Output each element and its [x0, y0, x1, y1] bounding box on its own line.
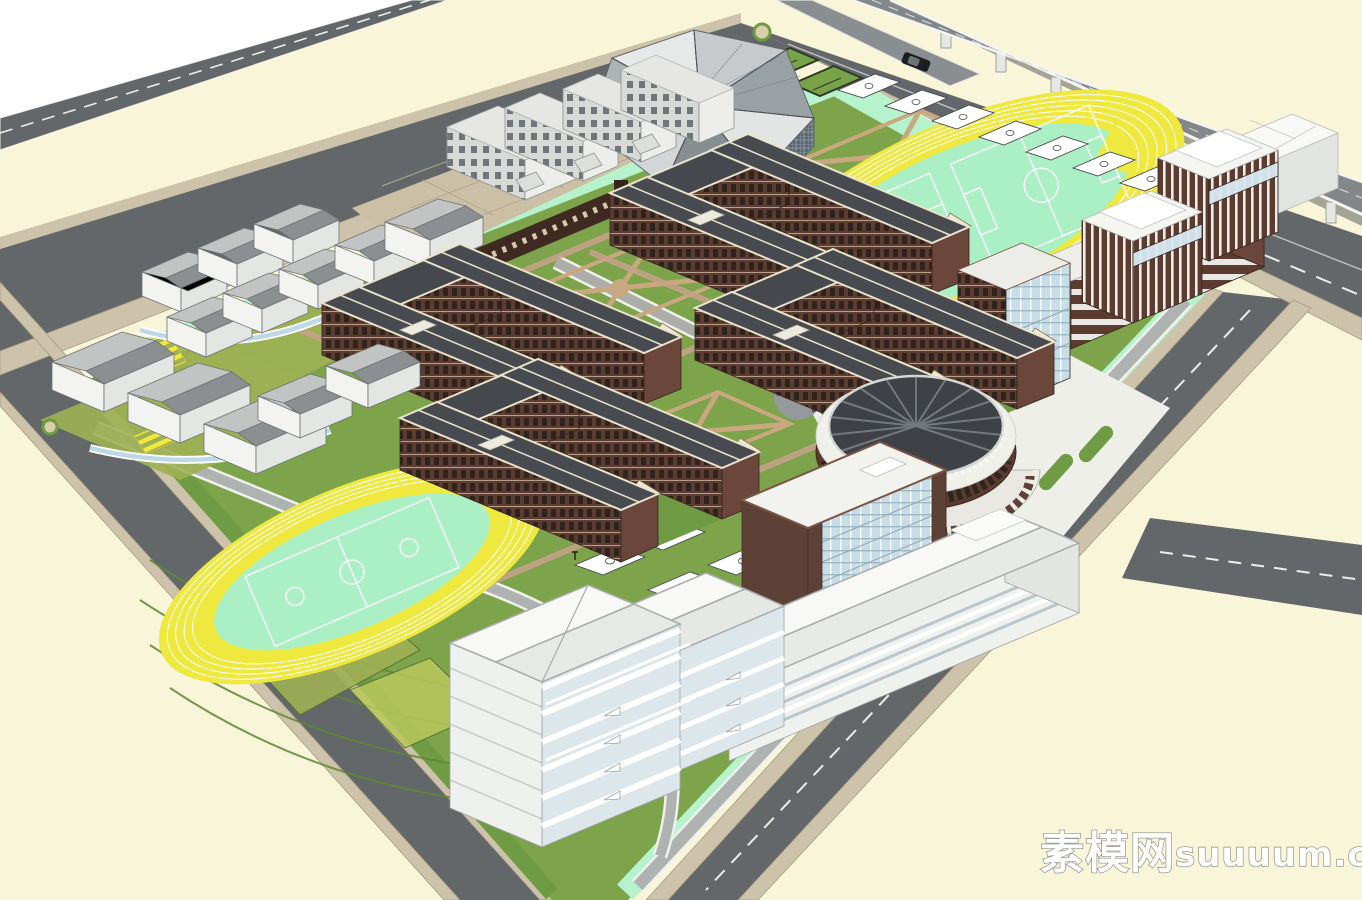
- watermark: 素模网suuuum.com: [1040, 828, 1362, 879]
- watermark-latin: suuuum.com: [1175, 835, 1362, 875]
- watermark-text: 素模网suuuum.com: [1040, 828, 1362, 879]
- campus-render: 素模网suuuum.com: [0, 0, 1362, 900]
- watermark-cjk: 素模网: [1040, 828, 1175, 879]
- round-planter: [43, 420, 57, 434]
- round-planter-north: [754, 24, 770, 40]
- campus-render-canvas: 素模网suuuum.com: [0, 0, 1362, 900]
